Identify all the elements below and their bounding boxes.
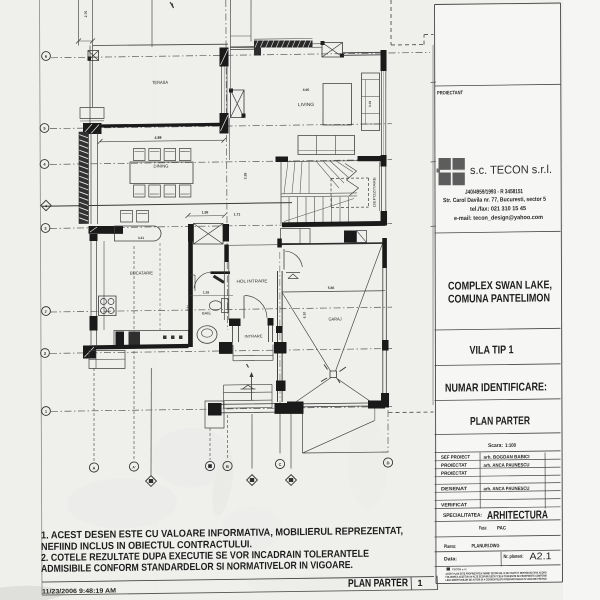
svg-text:2': 2' bbox=[45, 310, 48, 314]
svg-text:VILA TIP 1: VILA TIP 1 bbox=[469, 344, 513, 357]
svg-text:arh. ANCA PAUNESCU: arh. ANCA PAUNESCU bbox=[484, 462, 530, 469]
svg-text:Nr. plansei:: Nr. plansei: bbox=[504, 554, 524, 560]
svg-text:B: B bbox=[226, 464, 229, 469]
svg-text:s.c. TECON s.r.l.: s.c. TECON s.r.l. bbox=[470, 164, 552, 177]
svg-text:PLAN PARTER: PLAN PARTER bbox=[348, 577, 408, 590]
svg-text:GARAJ: GARAJ bbox=[329, 316, 342, 321]
svg-text:COMPLEX SWAN LAKE,: COMPLEX SWAN LAKE, bbox=[448, 279, 552, 292]
svg-text:2.21: 2.21 bbox=[186, 305, 190, 311]
svg-text:J40/4959/1993 - R 3458151: J40/4959/1993 - R 3458151 bbox=[465, 189, 524, 196]
svg-text:VERIFICAT: VERIFICAT bbox=[441, 502, 467, 508]
svg-text:Scara:: Scara: bbox=[488, 443, 503, 449]
svg-text:PROIECTANT: PROIECTANT bbox=[437, 90, 463, 96]
svg-text:SEF PROIECT: SEF PROIECT bbox=[441, 454, 470, 460]
svg-text:6.95: 6.95 bbox=[303, 88, 310, 92]
svg-text:D: D bbox=[387, 460, 390, 465]
svg-text:1: 1 bbox=[417, 578, 422, 588]
svg-text:DESENAT: DESENAT bbox=[441, 486, 467, 492]
svg-text:1.71: 1.71 bbox=[234, 212, 241, 216]
svg-text:Plansa:: Plansa: bbox=[444, 544, 456, 550]
svg-text:Data:: Data: bbox=[444, 556, 457, 562]
svg-text:e-mail: tecon_design@yahoo.co: e-mail: tecon_design@yahoo.com bbox=[454, 215, 543, 222]
svg-text:PROIECTAT: PROIECTAT bbox=[441, 463, 467, 469]
svg-text:tel./fax: 021 310 15 45: tel./fax: 021 310 15 45 bbox=[470, 206, 527, 213]
svg-text:Faza:: Faza: bbox=[479, 525, 487, 531]
svg-text:A: A bbox=[93, 465, 96, 470]
svg-text:A2.1: A2.1 bbox=[529, 551, 551, 562]
svg-text:PLANURI.DWG: PLANURI.DWG bbox=[472, 543, 500, 549]
svg-text:DINING: DINING bbox=[153, 163, 168, 168]
svg-text:BUCATARIE: BUCATARIE bbox=[130, 270, 153, 275]
svg-text:1:100: 1:100 bbox=[505, 443, 516, 449]
svg-text:5.86: 5.86 bbox=[328, 286, 335, 290]
svg-text:HOL INTRARE: HOL INTRARE bbox=[236, 278, 267, 283]
svg-text:INTRARE: INTRARE bbox=[245, 334, 264, 338]
svg-text:1.98: 1.98 bbox=[202, 210, 209, 214]
svg-text:PAC: PAC bbox=[497, 525, 506, 531]
svg-text:1.38: 1.38 bbox=[203, 290, 209, 294]
svg-text:arh. BOGDAN BABICI: arh. BOGDAN BABICI bbox=[484, 454, 531, 461]
svg-text:4.88: 4.88 bbox=[154, 136, 161, 140]
svg-text:C: C bbox=[279, 462, 282, 467]
svg-text:SPECIALITATEA:: SPECIALITATEA: bbox=[443, 513, 482, 520]
svg-text:3.38: 3.38 bbox=[244, 173, 248, 180]
svg-text:11/23/2006 9:48:19 AM: 11/23/2006 9:48:19 AM bbox=[42, 588, 116, 596]
svg-text:BAIE: BAIE bbox=[202, 311, 211, 315]
svg-text:COMUNA PANTELIMON: COMUNA PANTELIMON bbox=[448, 292, 550, 305]
svg-text:PROIECTAT: PROIECTAT bbox=[441, 471, 467, 477]
svg-text:PLAN PARTER: PLAN PARTER bbox=[470, 415, 530, 428]
svg-text:TERASA: TERASA bbox=[152, 80, 169, 85]
svg-text:LIVING: LIVING bbox=[298, 102, 314, 107]
svg-text:3.21: 3.21 bbox=[138, 236, 144, 240]
svg-text:A': A' bbox=[132, 465, 135, 469]
svg-text:4: 4 bbox=[45, 204, 47, 208]
svg-text:DEPOZITARE: DEPOZITARE bbox=[372, 176, 376, 207]
svg-text:6.10: 6.10 bbox=[303, 312, 307, 319]
svg-text:3.19: 3.19 bbox=[368, 101, 372, 107]
svg-text:arh. ANCA PAUNESCU: arh. ANCA PAUNESCU bbox=[484, 486, 530, 493]
svg-text:NUMAR IDENTIFICARE:: NUMAR IDENTIFICARE: bbox=[445, 381, 547, 394]
svg-text:2.75: 2.75 bbox=[84, 11, 88, 18]
